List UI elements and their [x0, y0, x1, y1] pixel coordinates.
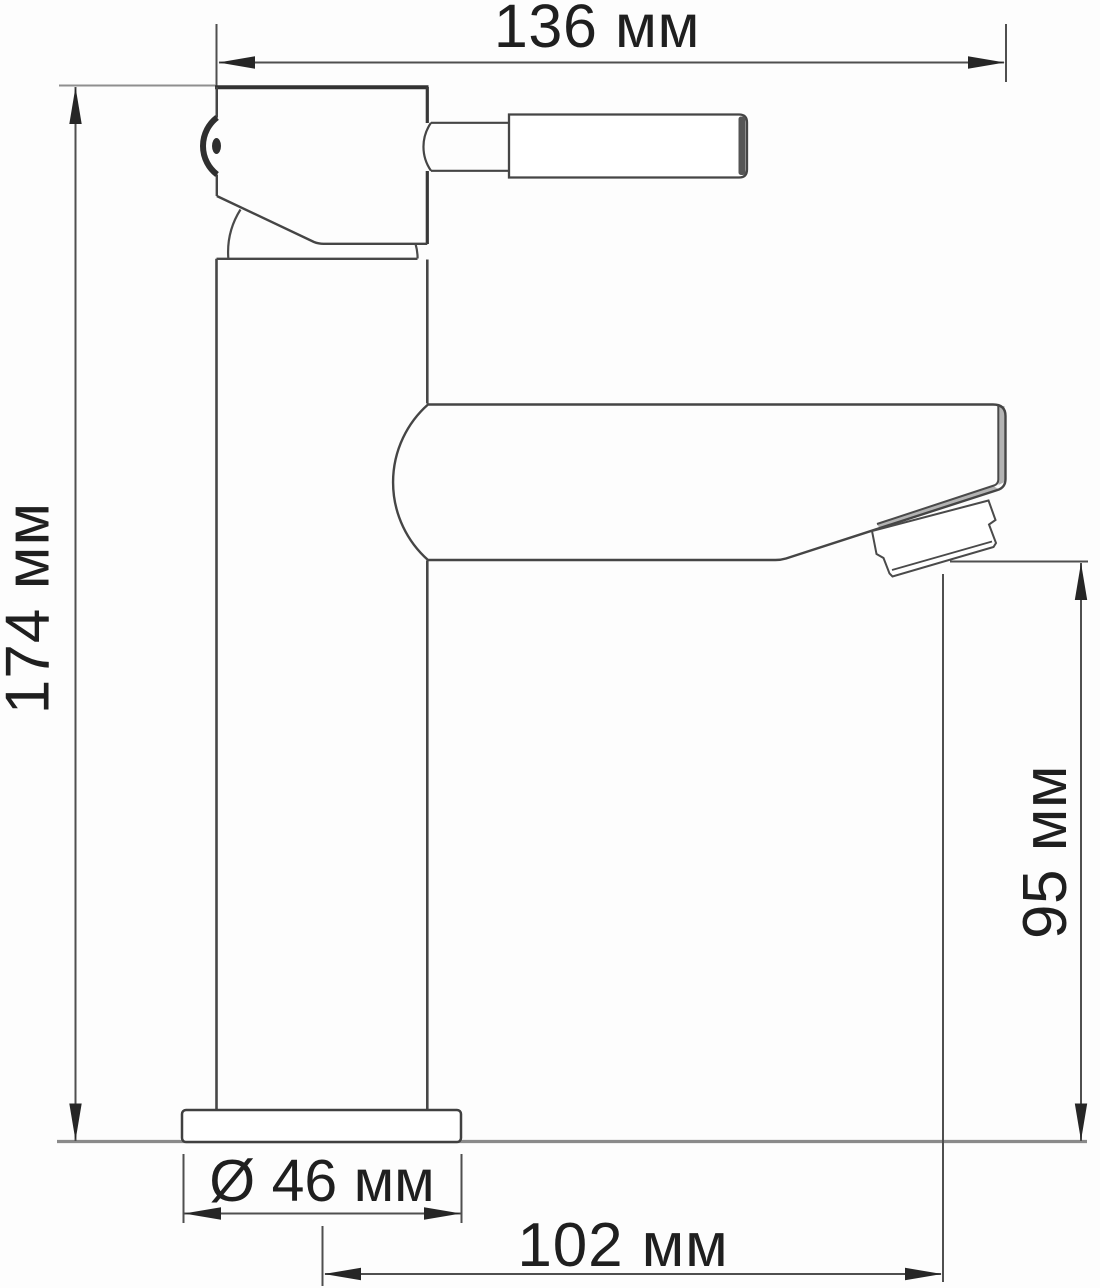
svg-text:Ø 46 мм: Ø 46 мм [209, 1148, 434, 1214]
svg-text:136 мм: 136 мм [494, 0, 700, 60]
svg-text:95 мм: 95 мм [1011, 765, 1080, 939]
svg-text:174 мм: 174 мм [0, 502, 63, 715]
svg-text:102 мм: 102 мм [517, 1211, 728, 1280]
